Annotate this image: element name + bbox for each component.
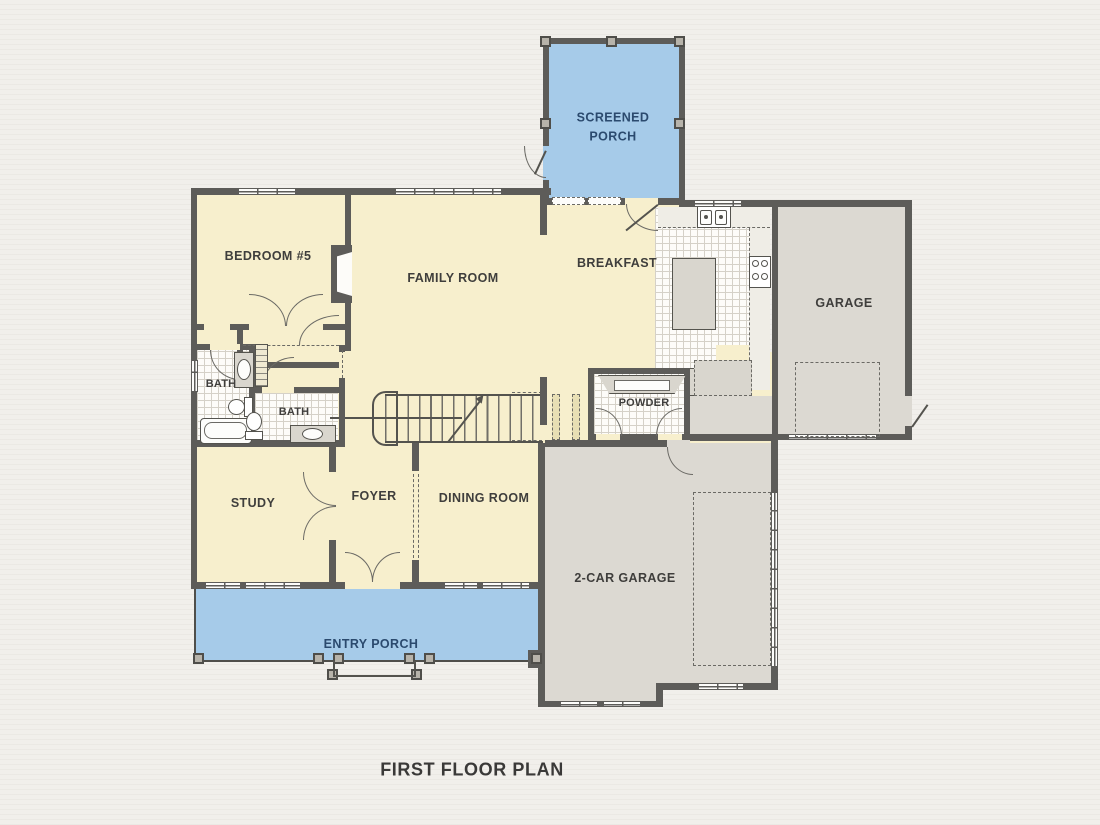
kitchen-counter-right [749,228,770,390]
porch-step-edge [333,675,416,677]
window [238,188,296,195]
garage-parking-area [795,362,880,437]
porch-step-edge [414,661,416,675]
window [395,188,502,195]
two-car-parking-area [693,492,771,666]
stair-rail-line [330,417,462,419]
cased-opening-jamb [572,394,580,440]
opening-bath-lower [262,387,294,393]
powder-vanity [598,375,686,394]
opening-garage-person-door [905,396,912,426]
window [205,582,241,589]
stair-opening-dash [512,392,542,393]
powder-vanity-inner [614,380,670,391]
bath-vanity [290,425,336,443]
porch-post [606,36,617,47]
wall-2car-top [545,440,667,447]
opening-garage-door-to-house [667,440,690,447]
sink-oval [302,428,323,440]
fireplace-firebox [337,252,352,296]
opening-dash [413,474,414,558]
room-label-entry-porch: ENTRY PORCH [324,637,419,651]
window [560,701,598,707]
opening-front-door [345,582,400,589]
wall-foyer-dining-stub [412,443,419,471]
garage-door-side [771,492,778,667]
wall-family-breakfast-stub [540,195,547,235]
floor-plan: SCREENED PORCH BEDROOM #5 FAMILY ROOM BR… [0,0,1100,825]
room-label-bath-lower: BATH [279,406,310,418]
toilet-bowl [246,412,262,431]
porch-step-edge [333,661,335,675]
door-leaf [911,404,928,427]
stair-opening-dash [512,440,542,441]
porch-post [540,36,551,47]
window [444,582,478,589]
porch-post [674,36,685,47]
room-label-powder: POWDER [619,397,670,409]
room-label-bedroom5: BEDROOM #5 [225,249,312,263]
room-label-two-car-garage: 2-CAR GARAGE [574,571,675,585]
burner [752,260,759,267]
wall-powder-top [588,368,690,374]
wall-bedroom-bottom-stub [197,324,204,330]
sink-oval [237,359,251,380]
room-label-garage: GARAGE [815,296,872,310]
sink-drain-dot [704,215,708,219]
window [603,701,641,707]
opening-dash [342,350,343,378]
porch-post [531,653,542,664]
wall-kitchen-garage [772,200,778,440]
sink-drain-dot [719,215,723,219]
wall-garage-top [772,200,912,207]
burner [761,273,768,280]
toilet-tank [245,431,263,440]
wall-hall-stub [540,377,547,425]
wall-mud-bottom [690,434,774,441]
screen-opening [588,197,621,205]
room-label-foyer: FOYER [351,489,396,503]
window [191,360,198,392]
opening-dash [418,474,419,558]
cased-opening-jamb [552,394,560,440]
cooktop [749,256,771,288]
room-label-screened-porch: SCREENED PORCH [563,109,663,148]
wall-powder-left [588,374,594,440]
wall-powder-right [684,368,690,440]
mud-closet [694,360,752,396]
porch-post [674,118,685,129]
room-label-breakfast: BREAKFAST [577,256,657,270]
room-label-bath-upper: BATH [206,378,237,390]
window [698,683,744,690]
porch-post [193,653,204,664]
toilet-bowl [228,399,245,415]
porch-post [313,653,324,664]
page-title: FIRST FLOOR PLAN [380,760,564,781]
window [245,582,301,589]
wall-2car-left [538,590,545,707]
window [482,582,530,589]
linen-closet [255,344,268,387]
screen-opening [552,197,585,205]
porch-post [424,653,435,664]
porch-post [540,118,551,129]
floor-family-foyer-dining [348,191,548,588]
burner [761,260,768,267]
room-label-family-room: FAMILY ROOM [407,271,498,285]
wall-bedroom-bottom-stub [230,324,243,330]
bath-sink-counter [234,352,254,388]
room-label-dining-room: DINING ROOM [439,491,530,505]
room-label-study: STUDY [231,496,275,510]
burner [752,273,759,280]
window [694,200,742,207]
kitchen-sink [697,206,731,228]
wall-2car-bottom-left [538,701,663,707]
floor-entry-porch [194,589,543,662]
wall-dining-right [538,443,545,590]
kitchen-island [672,258,716,330]
bathtub-inner [204,422,247,439]
